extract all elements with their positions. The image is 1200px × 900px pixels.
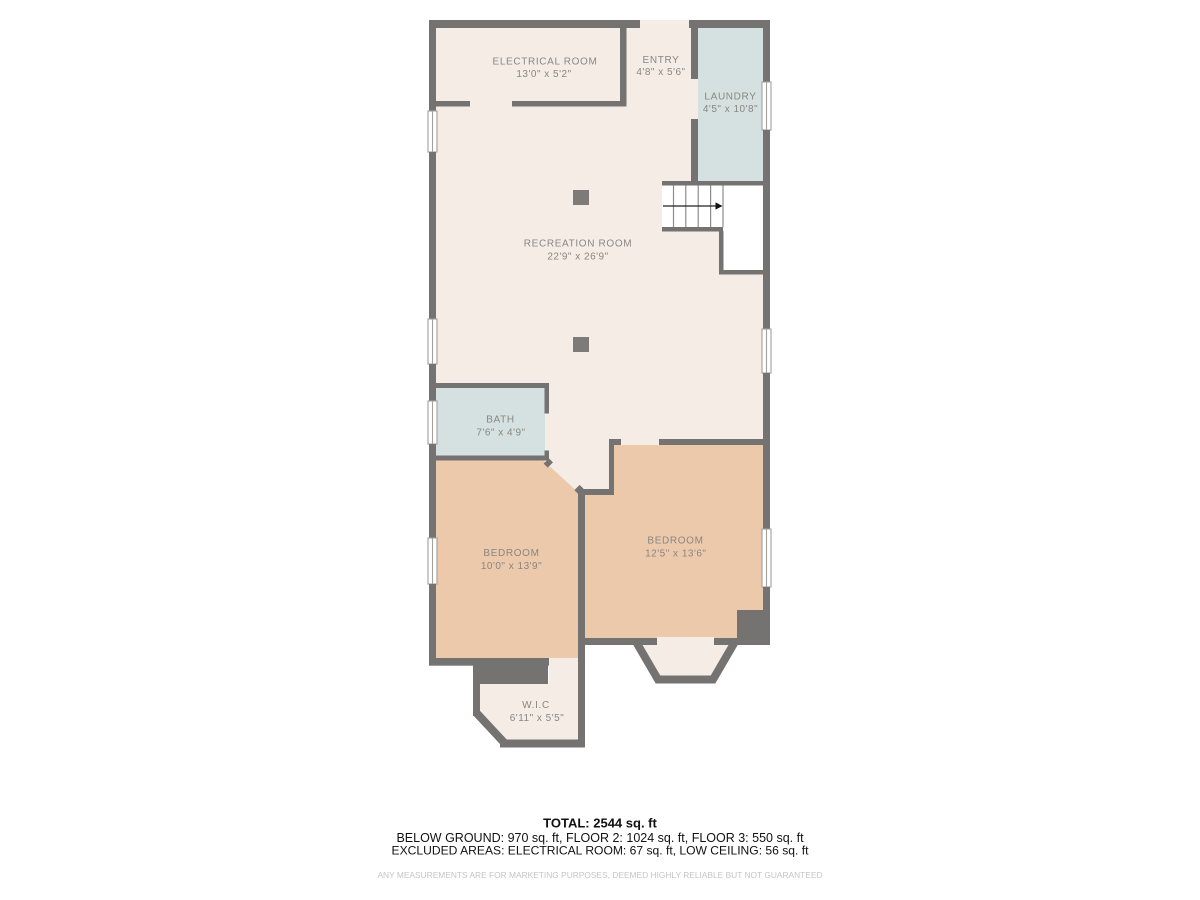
svg-text:13'0" x 5'2": 13'0" x 5'2" [516,69,571,80]
svg-text:LAUNDRY: LAUNDRY [704,92,756,103]
svg-text:TOTAL: 2544 sq. ft: TOTAL: 2544 sq. ft [543,816,657,831]
svg-text:22'9" x 26'9": 22'9" x 26'9" [547,252,608,263]
svg-text:ENTRY: ENTRY [643,55,680,66]
svg-text:BATH: BATH [486,415,515,426]
svg-text:6'11" x 5'5": 6'11" x 5'5" [510,713,565,724]
svg-text:12'5" x 13'6": 12'5" x 13'6" [645,549,706,560]
svg-text:7'6" x 4'9": 7'6" x 4'9" [476,428,525,439]
svg-text:BEDROOM: BEDROOM [483,548,539,559]
svg-text:EXCLUDED AREAS: ELECTRICAL ROO: EXCLUDED AREAS: ELECTRICAL ROOM: 67 sq. … [392,843,810,857]
svg-text:W.I.C: W.I.C [522,700,550,711]
svg-text:ANY MEASUREMENTS ARE FOR MARKE: ANY MEASUREMENTS ARE FOR MARKETING PURPO… [377,870,822,880]
svg-text:4'5" x 10'8": 4'5" x 10'8" [703,104,758,115]
svg-text:ELECTRICAL ROOM: ELECTRICAL ROOM [493,57,598,68]
svg-text:4'8" x 5'6": 4'8" x 5'6" [636,67,685,78]
svg-text:RECREATION ROOM: RECREATION ROOM [524,239,632,250]
svg-text:10'0" x 13'9": 10'0" x 13'9" [481,561,542,572]
svg-text:BEDROOM: BEDROOM [647,536,703,547]
